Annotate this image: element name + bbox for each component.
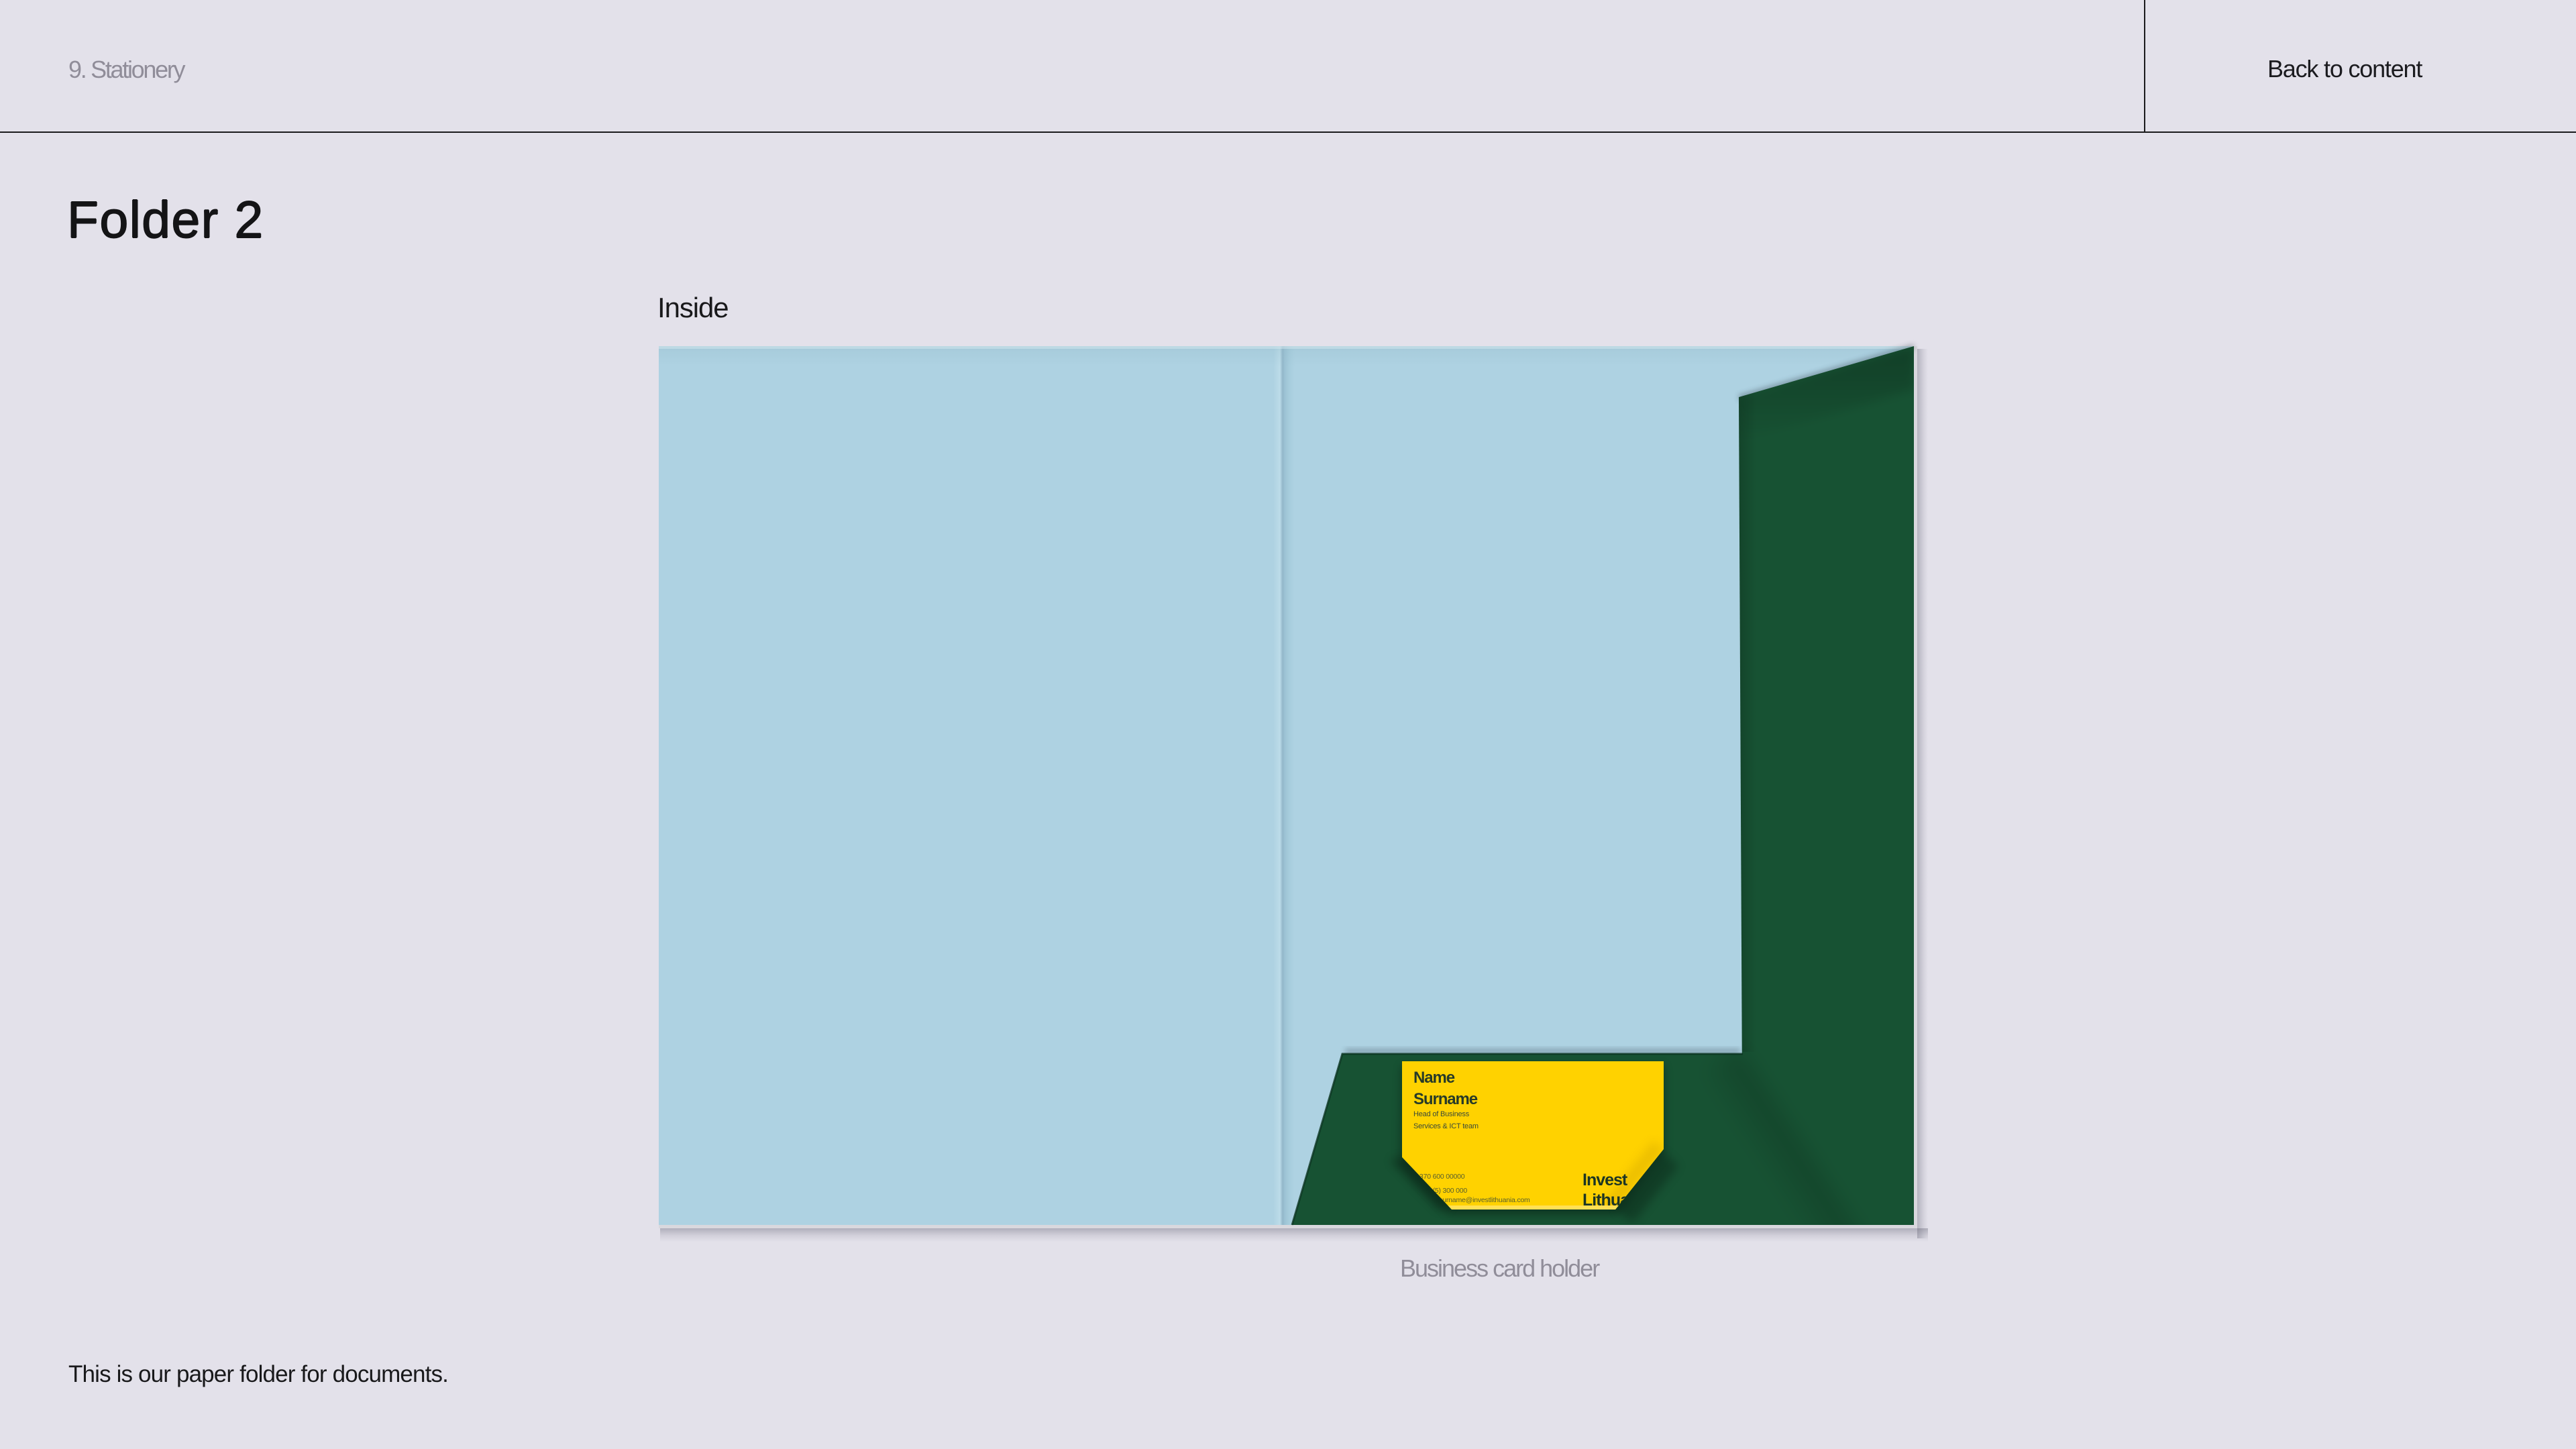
svg-text:Name: Name bbox=[1413, 1069, 1455, 1087]
svg-text:Services & ICT team: Services & ICT team bbox=[1413, 1122, 1479, 1130]
svg-text:Head of Business: Head of Business bbox=[1413, 1110, 1470, 1118]
svg-text:Invest: Invest bbox=[1582, 1171, 1628, 1189]
svg-text:Surname: Surname bbox=[1413, 1090, 1478, 1108]
